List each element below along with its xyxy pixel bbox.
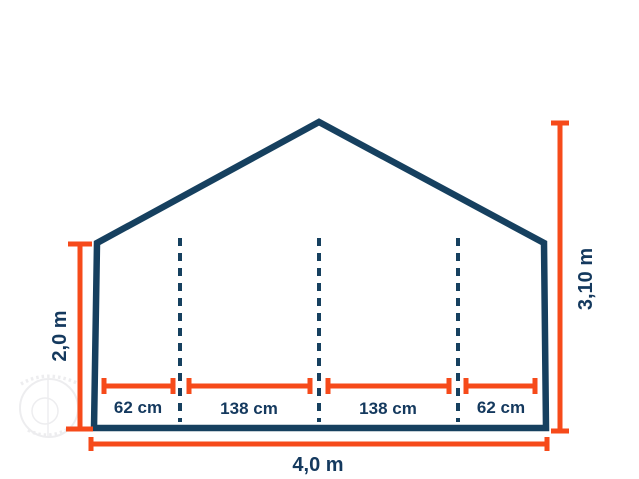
dimension-line-segment-1 — [104, 378, 173, 394]
dimension-line-segment-2 — [189, 378, 310, 394]
dimension-line-segment-3 — [328, 378, 449, 394]
ridge-height-label: 3,10 m — [575, 248, 597, 310]
dimension-eave-height: 2,0 m — [49, 244, 93, 429]
dimension-line-total-width — [91, 437, 547, 451]
dimension-segment-3: 138 cm — [328, 378, 449, 418]
dimension-line-segment-4 — [466, 378, 535, 394]
partition-dashed-lines — [180, 238, 458, 422]
watermark-top-arc-text — [21, 376, 77, 384]
segment-4-label: 62 cm — [477, 398, 525, 417]
dimension-segment-2: 138 cm — [189, 378, 310, 418]
dimension-line-ridge-height — [551, 123, 569, 431]
dimension-segment-4: 62 cm — [466, 378, 535, 417]
dimension-diagram: 2,0 m 3,10 m 4,0 m 62 cm 138 cm 138 cm 6… — [0, 0, 639, 479]
tent-elevation-drawing: 2,0 m 3,10 m 4,0 m 62 cm 138 cm 138 cm 6… — [0, 0, 639, 479]
dimension-total-width: 4,0 m — [91, 437, 547, 476]
watermark-inner-circle — [32, 398, 58, 424]
segment-1-label: 62 cm — [114, 398, 162, 417]
dimension-segment-1: 62 cm — [104, 378, 173, 417]
dimension-ridge-height: 3,10 m — [551, 123, 597, 431]
eave-height-label: 2,0 m — [49, 310, 71, 361]
segment-3-label: 138 cm — [359, 399, 417, 418]
segment-2-label: 138 cm — [220, 399, 278, 418]
total-width-label: 4,0 m — [292, 454, 343, 476]
